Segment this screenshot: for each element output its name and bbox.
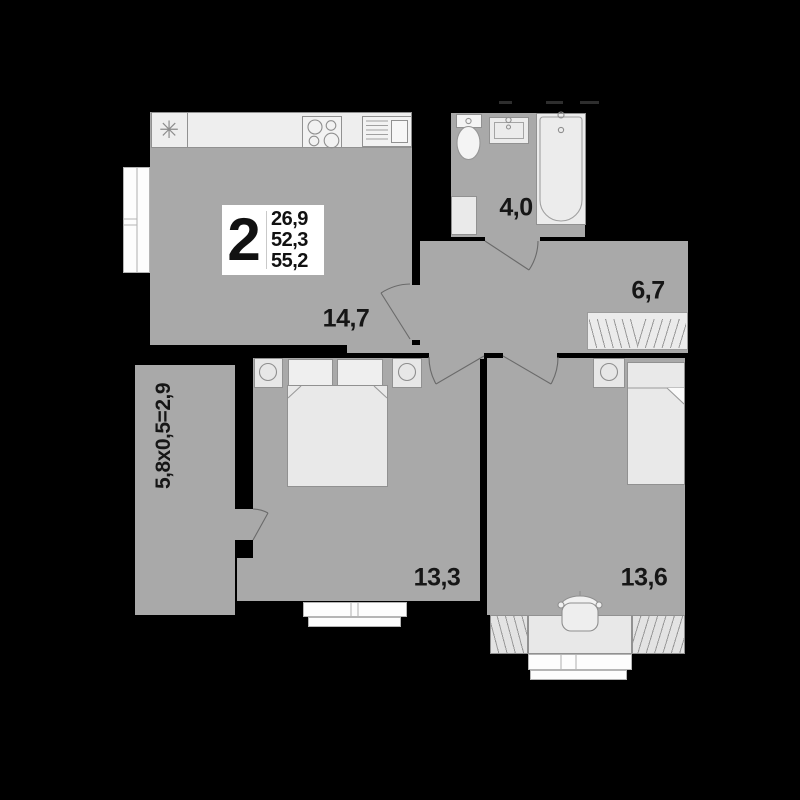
area-main: 52,3 [271, 230, 324, 251]
rooms-count: 2 [222, 205, 266, 275]
pillow-right [337, 359, 383, 386]
bedroom2-window [528, 654, 632, 670]
nightstand-bedroom2 [593, 358, 625, 388]
toilet-tank [456, 114, 482, 128]
label-bedroom1: 13,3 [414, 564, 461, 593]
sink-basin [391, 120, 408, 143]
single-bed [627, 362, 685, 485]
label-kitchen-living: 14,7 [323, 305, 370, 334]
stove [302, 116, 342, 148]
kitchen-window [123, 167, 150, 273]
refrigerator-icon: ✳ [159, 119, 179, 143]
label-balcony-formula: 5,8х0,5=2,9 [152, 383, 176, 489]
bedroom2-wardrobe-right [632, 615, 685, 654]
room-balcony [135, 365, 235, 615]
pillow-left [288, 359, 333, 386]
area-total: 55,2 [271, 251, 324, 272]
bathtub [536, 113, 586, 225]
bedroom2-window-sill [530, 670, 627, 680]
bedroom1-window-sill [308, 617, 401, 627]
bedroom1-left-extension [237, 558, 253, 601]
nightstand-left [254, 358, 283, 388]
area-living: 26,9 [271, 209, 324, 230]
cropped-text-remnant [546, 101, 563, 104]
label-bedroom2: 13,6 [621, 564, 668, 593]
nightstand-right [392, 358, 422, 388]
kitchen-door-opening [410, 285, 420, 340]
apartment-info-box: 2 26,9 52,3 55,2 [222, 205, 324, 275]
cropped-text-remnant [580, 101, 599, 104]
balcony-door-opening [235, 509, 253, 540]
hallway-wardrobe-hatch-right [638, 319, 686, 348]
kitchen-hall-step [347, 345, 420, 353]
floor-plan: ✳ [0, 0, 800, 800]
double-bed [287, 385, 388, 487]
bedroom2-desk [528, 615, 632, 654]
bathroom-sink-inner [494, 122, 524, 139]
washing-machine [451, 196, 477, 235]
label-hallway: 6,7 [631, 277, 664, 306]
bedroom1-window [303, 602, 407, 617]
bedroom2-wardrobe-left [490, 615, 528, 654]
label-bathroom: 4,0 [499, 194, 532, 223]
hallway-wardrobe-hatch-left [589, 319, 638, 348]
cropped-text-remnant [499, 101, 512, 104]
area-list: 26,9 52,3 55,2 [267, 209, 324, 272]
